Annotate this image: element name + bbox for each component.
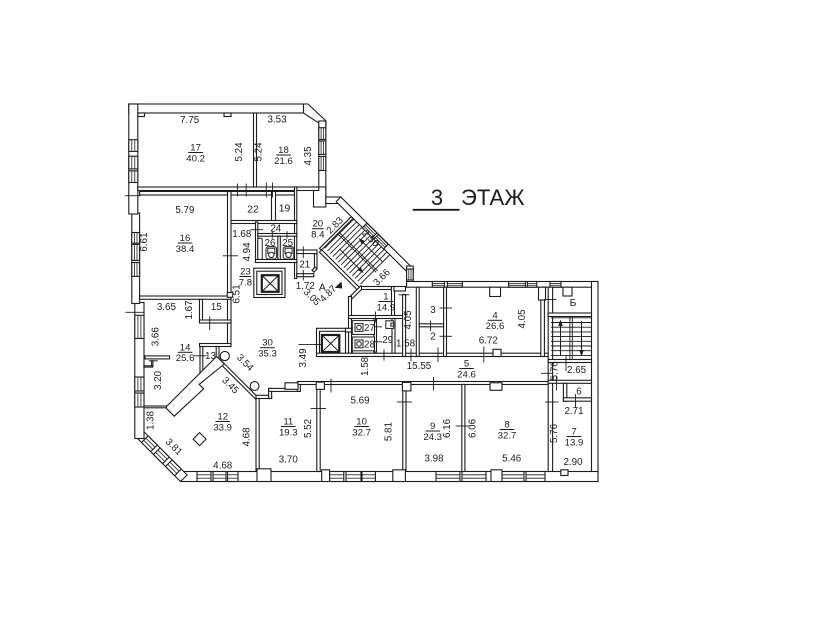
- svg-text:18: 18: [278, 145, 289, 156]
- svg-text:2.71: 2.71: [564, 406, 583, 417]
- svg-text:9: 9: [430, 421, 435, 432]
- svg-text:5.52: 5.52: [303, 419, 314, 438]
- svg-text:3: 3: [431, 185, 443, 210]
- svg-text:15: 15: [211, 302, 222, 313]
- svg-text:1.58: 1.58: [396, 339, 416, 350]
- svg-text:6.72: 6.72: [479, 336, 498, 347]
- svg-text:4.68: 4.68: [213, 461, 233, 472]
- svg-text:21: 21: [299, 260, 310, 271]
- svg-text:40.2: 40.2: [186, 153, 205, 164]
- svg-text:5.79: 5.79: [175, 205, 194, 216]
- svg-text:19: 19: [279, 204, 291, 215]
- svg-text:4.05: 4.05: [517, 309, 528, 329]
- svg-text:3.66: 3.66: [150, 327, 161, 347]
- svg-text:26.6: 26.6: [486, 321, 505, 332]
- svg-text:10: 10: [356, 417, 367, 428]
- svg-text:32.7: 32.7: [498, 430, 517, 441]
- svg-text:1.58: 1.58: [360, 356, 371, 376]
- svg-text:11: 11: [283, 417, 293, 428]
- svg-text:5.76: 5.76: [549, 423, 560, 443]
- svg-text:7.75: 7.75: [180, 115, 200, 126]
- svg-text:21.6: 21.6: [274, 156, 293, 167]
- svg-text:12: 12: [217, 412, 228, 423]
- svg-text:5.69: 5.69: [350, 396, 369, 407]
- svg-text:25.6: 25.6: [176, 353, 195, 364]
- svg-text:25: 25: [282, 238, 293, 249]
- svg-text:33.9: 33.9: [213, 422, 232, 433]
- svg-text:6: 6: [576, 387, 582, 398]
- svg-text:1.67: 1.67: [184, 300, 195, 319]
- svg-text:3.65: 3.65: [157, 302, 177, 313]
- svg-text:4.68: 4.68: [242, 427, 253, 447]
- svg-text:8: 8: [504, 420, 509, 431]
- svg-text:4.94: 4.94: [242, 242, 253, 262]
- svg-text:16: 16: [180, 233, 191, 244]
- svg-text:22: 22: [247, 205, 259, 216]
- svg-text:6.61: 6.61: [139, 233, 150, 252]
- svg-text:2.65: 2.65: [567, 365, 587, 376]
- svg-text:14: 14: [180, 342, 191, 353]
- svg-text:3.70: 3.70: [279, 455, 299, 466]
- svg-text:5: 5: [464, 359, 469, 370]
- svg-text:4: 4: [492, 310, 498, 321]
- svg-text:28: 28: [364, 339, 375, 350]
- svg-text:13.9: 13.9: [565, 437, 584, 448]
- svg-text:27: 27: [364, 323, 375, 334]
- svg-text:24.3: 24.3: [423, 432, 442, 443]
- svg-text:8.4: 8.4: [311, 230, 325, 241]
- svg-text:6.16: 6.16: [442, 418, 453, 438]
- svg-text:17: 17: [190, 143, 201, 154]
- svg-text:15.55: 15.55: [407, 361, 432, 372]
- svg-text:ЭТАЖ: ЭТАЖ: [461, 185, 525, 210]
- svg-text:26: 26: [265, 238, 276, 249]
- svg-text:7: 7: [571, 427, 576, 438]
- svg-text:1.68: 1.68: [232, 229, 252, 240]
- svg-text:1: 1: [383, 292, 388, 303]
- svg-text:6.51: 6.51: [232, 284, 243, 303]
- svg-text:1.38: 1.38: [146, 410, 157, 430]
- svg-text:4.35: 4.35: [303, 146, 314, 166]
- svg-text:24.6: 24.6: [457, 369, 476, 380]
- svg-text:5.24: 5.24: [254, 142, 265, 162]
- svg-text:35.3: 35.3: [258, 349, 277, 360]
- svg-text:5.24: 5.24: [234, 142, 245, 162]
- svg-text:3: 3: [430, 305, 436, 316]
- svg-text:2.90: 2.90: [563, 457, 583, 468]
- svg-text:13: 13: [205, 351, 216, 362]
- svg-text:4.05: 4.05: [403, 310, 414, 330]
- svg-text:5.46: 5.46: [502, 454, 522, 465]
- svg-text:Б: Б: [570, 298, 577, 309]
- svg-text:3.98: 3.98: [424, 454, 444, 465]
- svg-text:30: 30: [262, 338, 273, 349]
- svg-text:3.49: 3.49: [298, 348, 309, 367]
- svg-text:5.81: 5.81: [384, 422, 395, 441]
- svg-text:24: 24: [270, 224, 281, 235]
- svg-text:20: 20: [312, 219, 323, 230]
- svg-text:38.4: 38.4: [176, 244, 195, 255]
- svg-text:23: 23: [240, 267, 251, 278]
- svg-text:29: 29: [382, 335, 393, 346]
- svg-text:6.06: 6.06: [467, 418, 478, 438]
- svg-text:19.3: 19.3: [279, 427, 298, 438]
- svg-text:5.76: 5.76: [550, 361, 561, 381]
- svg-text:3.53: 3.53: [267, 115, 287, 126]
- svg-text:3.20: 3.20: [153, 370, 164, 390]
- svg-text:14.9: 14.9: [377, 302, 396, 313]
- svg-text:2: 2: [430, 332, 435, 343]
- svg-text:32.7: 32.7: [352, 427, 371, 438]
